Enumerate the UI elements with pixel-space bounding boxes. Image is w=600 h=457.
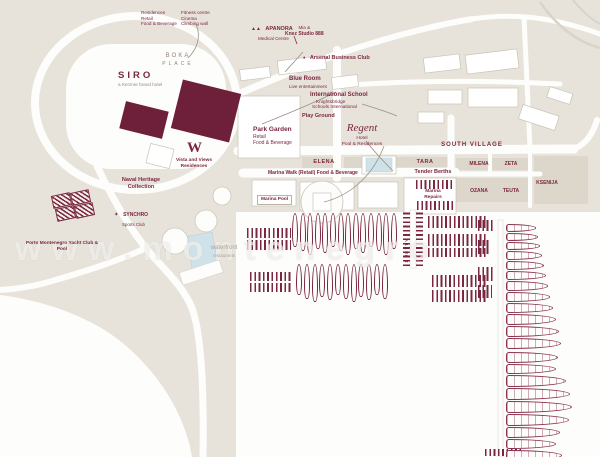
vista-line2: Residences — [176, 164, 212, 170]
boka-place-label: BOKA PLACE — [162, 53, 193, 67]
berth-comb — [478, 267, 493, 281]
legend-line: Fitness centre — [181, 10, 210, 16]
legend-column-residences: Residences Retail Food & Beverage — [141, 10, 177, 27]
block-zeta: ZETA — [505, 161, 518, 167]
synchro-name: SYNCHRO — [123, 212, 148, 218]
block-tara: TARA — [417, 159, 434, 166]
yacht-club-label: Porto Montenegro Yacht Club & Pool — [26, 241, 98, 253]
regent-label: Regent Hotel Pool & Residences — [342, 122, 383, 148]
school-line3: Schools International — [312, 105, 368, 111]
boka-line2: PLACE — [162, 61, 193, 67]
repairs-line2: Repairs — [424, 195, 442, 201]
jetty-label: 1 JETTY — [404, 238, 410, 263]
siro-subtitle: a Kerzner brand hotel — [118, 82, 162, 88]
school-label: International School Knightsbridge Schoo… — [310, 92, 368, 111]
round-building-core — [313, 193, 331, 211]
tender-berths-label: Tender Berths — [415, 169, 452, 176]
naval-heritage-label: Naval Heritage Collection — [122, 177, 160, 191]
marina-repairs-label: Marina Repairs — [424, 189, 442, 201]
playground-label: Play Ground — [302, 113, 335, 120]
studio-line2: Knez Studio 888 — [285, 31, 324, 37]
tender-berth-comb — [417, 201, 453, 210]
studio-label: Mia & Knez Studio 888 — [285, 25, 324, 37]
promenade-label: Marina Walk (Retail) Food & Beverage — [268, 170, 358, 176]
tender-berth-comb — [416, 180, 452, 189]
block-elena: ELENA — [313, 159, 334, 166]
vista-line1: Vista and Views — [176, 158, 212, 164]
block-teuta: TEUTA — [503, 188, 519, 194]
synchro-subtitle: Sports Club — [122, 222, 148, 228]
yacht-club-line2: Pool — [26, 247, 98, 253]
business-club-name: Arsenal Business Club — [310, 55, 370, 61]
legend-column-leisure: Fitness centre Cinema Climbing wall — [181, 10, 210, 27]
resort-marina-map: www.montenegro Residences Retail Food & … — [0, 0, 600, 457]
siro-label: SIRO a Kerzner brand hotel — [118, 70, 162, 88]
legend-line: Food & Beverage — [141, 21, 177, 27]
block-milena: MILENA — [469, 161, 488, 167]
boka-line1: BOKA — [162, 53, 193, 61]
vista-residences-label: W Vista and Views Residences — [176, 139, 212, 170]
block-ozana: OZANA — [470, 188, 488, 194]
club-icon: ♦ — [303, 55, 305, 60]
naval-line1: Naval Heritage — [122, 177, 160, 184]
waterfront-line2: restaurants — [211, 253, 238, 259]
waterfront-line1: waterfront — [211, 245, 238, 253]
blue-room-subtitle: Live entertainment — [289, 84, 327, 90]
berth-comb — [478, 220, 494, 231]
blue-room-name: Blue Room — [289, 76, 327, 84]
legend-line: Climbing wall — [181, 21, 210, 27]
berthed-boat — [312, 264, 318, 302]
berthed-boat — [351, 264, 357, 302]
vista-monogram: W — [176, 139, 212, 158]
business-club-label: ♦ Arsenal Business Club — [303, 45, 370, 65]
berthed-boat — [343, 264, 349, 299]
school-name: International School — [310, 92, 368, 100]
berth-comb — [478, 240, 491, 254]
main-pontoon — [498, 220, 503, 457]
berth-comb — [250, 283, 292, 292]
berth-comb — [478, 285, 492, 298]
berth-comb — [250, 272, 292, 281]
blue-room-label: Blue Room Live entertainment — [289, 76, 327, 89]
regent-name: Regent — [342, 122, 383, 136]
regent-pool — [366, 158, 392, 172]
mountain-icon: ▲▲ — [251, 26, 261, 32]
berthed-boat — [382, 264, 388, 299]
park-garden-name: Park Garden — [253, 126, 292, 134]
marina-pool-label: Marina Pool — [257, 195, 292, 205]
synchro-icon: ✦ — [114, 212, 119, 218]
naval-line2: Collection — [122, 184, 160, 191]
block-ksenija: KSENIJA — [536, 180, 558, 186]
waterfront-label: waterfront restaurants — [211, 245, 238, 258]
regent-line3: Pool & Residences — [342, 142, 383, 148]
park-garden-line3: Food & Beverage — [253, 140, 292, 146]
siro-name: SIRO — [118, 70, 162, 82]
street-south-village: SOUTH VILLAGE — [441, 142, 503, 150]
synchro-label: ✦ SYNCHRO Sports Club — [114, 202, 148, 228]
park-garden-label: Park Garden Retail Food & Beverage — [253, 126, 292, 147]
berthed-boat — [304, 264, 310, 299]
